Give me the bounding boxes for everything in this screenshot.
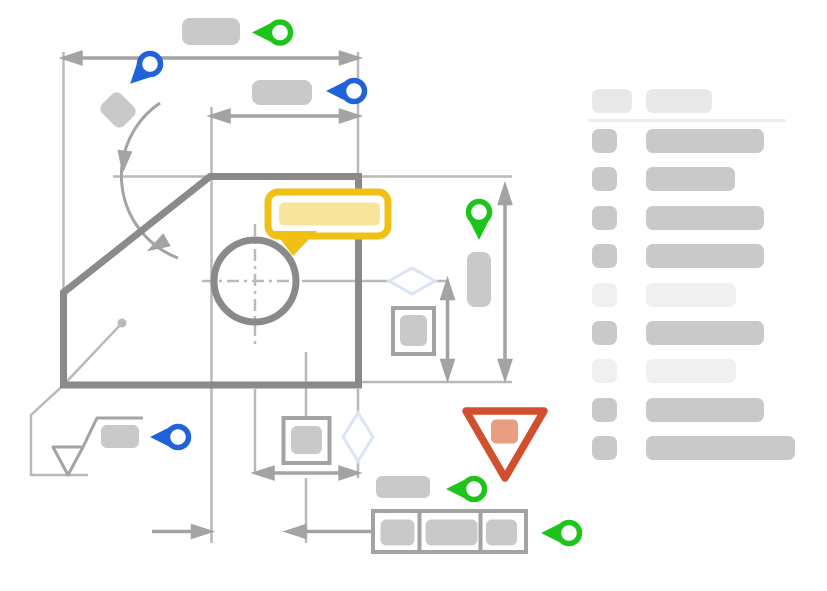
- legend-row-bar: [646, 436, 795, 460]
- angle-dimension-label[interactable]: [97, 89, 138, 130]
- pin-surface-finish[interactable]: [150, 427, 189, 448]
- fcf-cell-placeholder: [486, 520, 517, 546]
- legend-row-bar: [646, 398, 764, 422]
- annotation-list-panel: [588, 85, 803, 475]
- legend-row-icon: [592, 129, 617, 153]
- checkpoint-diamond-right[interactable]: [389, 268, 435, 294]
- pin-height-dimension[interactable]: [469, 202, 490, 241]
- surface-finish-label[interactable]: [101, 425, 139, 448]
- pin-head: [344, 81, 365, 102]
- legend-header-title: [646, 89, 712, 113]
- pin-head: [469, 202, 490, 223]
- leader-line: [31, 323, 122, 475]
- legend-row-2[interactable]: [588, 167, 803, 191]
- arrowhead: [340, 468, 357, 479]
- pin-head: [168, 427, 189, 448]
- arrowhead: [288, 526, 305, 537]
- legend-row-bar: [646, 321, 764, 345]
- fcf-cell-placeholder: [381, 520, 415, 546]
- comment-bubble[interactable]: [268, 192, 388, 256]
- comment-text-placeholder: [279, 203, 380, 226]
- pin-head: [270, 22, 291, 43]
- top-dimension-label[interactable]: [182, 18, 240, 45]
- pin-inner-width[interactable]: [326, 81, 365, 102]
- legend-row-icon: [592, 244, 617, 268]
- legend-row-bar: [646, 167, 735, 191]
- checkpoint-diamond-bottom[interactable]: [343, 413, 373, 461]
- height-dimension-label[interactable]: [467, 252, 491, 307]
- legend-row-bar: [646, 283, 736, 307]
- arrowhead: [118, 152, 131, 170]
- arrowhead: [442, 282, 453, 299]
- arrowhead: [341, 111, 358, 122]
- arrowhead: [256, 468, 273, 479]
- legend-row-1[interactable]: [588, 129, 803, 153]
- legend-row-4[interactable]: [588, 244, 803, 268]
- arrowhead: [341, 53, 358, 64]
- datum-frame-bottom[interactable]: [284, 418, 330, 463]
- pin-overall-width[interactable]: [123, 49, 165, 91]
- datum-label-placeholder: [291, 426, 322, 454]
- fcf-cell-placeholder: [426, 520, 478, 546]
- legend-row-bar: [646, 206, 764, 230]
- legend-separator: [588, 119, 786, 122]
- pin-fcf[interactable]: [541, 523, 580, 544]
- arrowhead: [500, 361, 511, 378]
- arrowhead: [64, 53, 81, 64]
- pin-head: [559, 523, 580, 544]
- pin-fcf-label[interactable]: [446, 479, 485, 500]
- legend-row-9[interactable]: [588, 436, 803, 460]
- legend-row-icon: [592, 398, 617, 422]
- warning-text-placeholder: [491, 420, 518, 444]
- warning-triangle[interactable]: [466, 411, 544, 478]
- datum-label-placeholder: [400, 315, 427, 346]
- legend-row-icon: [592, 283, 617, 307]
- legend-row-icon: [592, 321, 617, 345]
- legend-row-icon: [592, 167, 617, 191]
- arrowhead: [442, 361, 453, 378]
- legend-row-5[interactable]: [588, 283, 803, 307]
- arrowhead: [193, 526, 210, 537]
- drawing-review-canvas: [0, 0, 827, 591]
- inner-dimension-label[interactable]: [252, 80, 312, 105]
- legend-row-icon: [592, 206, 617, 230]
- legend-row-bar: [646, 244, 764, 268]
- legend-row-bar: [646, 129, 764, 153]
- datum-frame-right[interactable]: [393, 308, 434, 354]
- legend-row-3[interactable]: [588, 206, 803, 230]
- legend-header-icon: [592, 89, 632, 113]
- angle-dimension-arc: [118, 103, 178, 258]
- legend-row-6[interactable]: [588, 321, 803, 345]
- feature-control-frame[interactable]: [373, 511, 526, 552]
- leader-dot: [118, 319, 127, 328]
- legend-row-7[interactable]: [588, 359, 803, 383]
- pin-head: [464, 479, 485, 500]
- arrowhead: [212, 111, 229, 122]
- fcf-label[interactable]: [376, 476, 430, 498]
- legend-row-icon: [592, 436, 617, 460]
- legend-row-8[interactable]: [588, 398, 803, 422]
- legend-row-icon: [592, 359, 617, 383]
- pin-top-dimension[interactable]: [252, 22, 291, 43]
- arrowhead: [500, 187, 511, 204]
- legend-row-bar: [646, 359, 736, 383]
